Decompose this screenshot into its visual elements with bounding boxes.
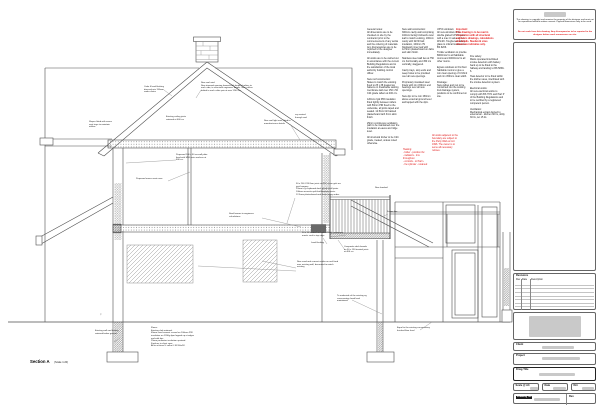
- drawing-sheet: { "section": { "name": "Section A", "sca…: [0, 0, 600, 406]
- scale-value-blurred: [530, 387, 538, 390]
- lean-to-roof: [36, 197, 113, 245]
- callout-floors-spec: Floors: Existing slab retained. 65mm san…: [151, 327, 198, 348]
- callout-ceiling-joists: Existing ceiling joists retained at 400 …: [166, 116, 194, 121]
- callout-deck: Composite deck boards on 50 x 150 treate…: [344, 246, 369, 254]
- callout-foundation: Existing wall and footing retained below…: [95, 330, 121, 335]
- stair-handrail: [351, 200, 500, 247]
- scale-box: Scale @ A3: [513, 383, 539, 391]
- practice-logo: [544, 12, 566, 17]
- boundary-pier: [502, 232, 512, 322]
- date-value-blurred: [553, 387, 566, 390]
- revisions-box: Revisions Rev Date Description: [513, 273, 596, 310]
- callout-handrail: New handrail: [375, 187, 395, 190]
- drawn-by-value-blurred: [582, 387, 594, 390]
- note-column-2: New wall construction: 300mm cavity wall…: [402, 29, 435, 105]
- gutter-right: [334, 149, 345, 155]
- ground-level-marker: ▽: [100, 314, 108, 317]
- project-label: Project: [516, 355, 525, 358]
- foundation-right: [367, 352, 394, 362]
- logo-box: [513, 312, 596, 340]
- section-name: Section A: [30, 359, 50, 364]
- left-elevation-wall: [40, 68, 112, 322]
- callout-floor-joists: 50 x 200 C24 floor joists at 400 crs on …: [296, 183, 342, 196]
- callout-frame-line: Frame line: [387, 211, 403, 214]
- disclaimer-text: This drawing is copyright and remains th…: [516, 19, 594, 25]
- callout-steel-beam: Steel beams to engineers calculations: [229, 213, 262, 218]
- revisions-divider-2: [530, 279, 531, 310]
- hatched-wall-panel-2: [243, 240, 277, 282]
- callout-gable-left: Slopes fitted with eaves vent trays to m…: [89, 121, 115, 129]
- drawing-number-value-blurred: [534, 398, 560, 401]
- drawn-by-label: Drn: [574, 385, 578, 388]
- callout-svp-vent: svp vented through roof: [295, 114, 311, 119]
- drawing-number-box: Drawing No Rev: [513, 393, 596, 404]
- callout-battens: 50 x 50 treated sw battens with continuo…: [302, 232, 348, 237]
- general-notes-box: [513, 42, 596, 271]
- balcony-post: [377, 240, 383, 352]
- section-scale: (Scale 1:20): [54, 361, 68, 364]
- project-value-blurred: [542, 357, 580, 360]
- disclaimer-red-text: Do not scale from this drawing. Any disc…: [516, 31, 594, 37]
- drawing-number-label: Drawing No: [516, 396, 532, 400]
- callout-rooflight: New roof light over, fitted to manufactu…: [264, 120, 292, 125]
- note-column-1: General notes: All dimensions are to be …: [367, 29, 400, 146]
- drawing-title-value-blurred: [539, 373, 575, 376]
- drawing-title-box: Drwg Title: [513, 367, 596, 381]
- right-main-wall: [322, 153, 330, 322]
- scale-label: Scale @ A3: [516, 385, 530, 388]
- drawing-number-divider: [566, 394, 567, 405]
- date-label: Date: [545, 385, 551, 388]
- callout-conservatory-floor: Equal to the existing conservatory finis…: [397, 327, 437, 332]
- callout-eaves-vents: Proposed eaves vents over: [136, 178, 169, 181]
- disclaimer-box: This drawing is copyright and remains th…: [513, 9, 596, 40]
- client-value-blurred: [542, 346, 574, 349]
- ceiling-insulation-band: [108, 140, 336, 148]
- left-main-wall: [113, 148, 123, 352]
- section-title: Section A (Scale 1:20): [30, 350, 68, 368]
- client-label: Client: [516, 344, 523, 347]
- first-floor-band: [113, 224, 330, 233]
- callout-lead-flashing: Lead flashing: [311, 242, 327, 245]
- drawn-by-box: Drn: [571, 383, 596, 391]
- chimney: [194, 37, 221, 62]
- callout-flashing: Code 4 lead flashing dressed min 150mm u…: [144, 86, 164, 94]
- foundation-left: [107, 352, 138, 362]
- company-logo: [529, 316, 581, 337]
- conservatory: [395, 202, 500, 322]
- callout-underside: To underside of the existing eg conserva…: [337, 295, 370, 303]
- drawing-title-label: Drwg Title: [516, 369, 529, 372]
- note-red-party-wall: All works adjacent to the boundary are s…: [432, 135, 460, 153]
- conservatory-door: [452, 250, 478, 318]
- hatched-wall-panel-1: [127, 245, 193, 283]
- date-box: Date: [542, 383, 568, 391]
- revision-label: Rev: [569, 396, 574, 399]
- client-box: Client: [513, 342, 596, 351]
- section-drawing: [0, 0, 600, 406]
- gutter-left: [40, 138, 53, 145]
- note-column-4: Fire safety: Mains operated interlinked …: [470, 56, 505, 120]
- title-block: This drawing is copyright and remains th…: [513, 0, 597, 406]
- callout-wall-plate: Proposed 100 x 50 sw wall plate fixed wi…: [176, 154, 210, 162]
- existing-roof-ridge-line: [45, 68, 352, 150]
- note-red-important: Important: This drawing is to be read in…: [456, 29, 494, 47]
- callout-ridge: New roof void: New trimmed opening forme…: [201, 82, 256, 93]
- conservatory-window: [446, 205, 475, 243]
- project-box: Project: [513, 353, 596, 365]
- note-red-heating-list: Heating: - boiler - position tbc - radia…: [403, 149, 429, 167]
- revisions-table: [515, 282, 594, 310]
- callout-render: New sand and cement render on eml fixed …: [297, 261, 339, 269]
- revisions-divider-1: [521, 279, 522, 310]
